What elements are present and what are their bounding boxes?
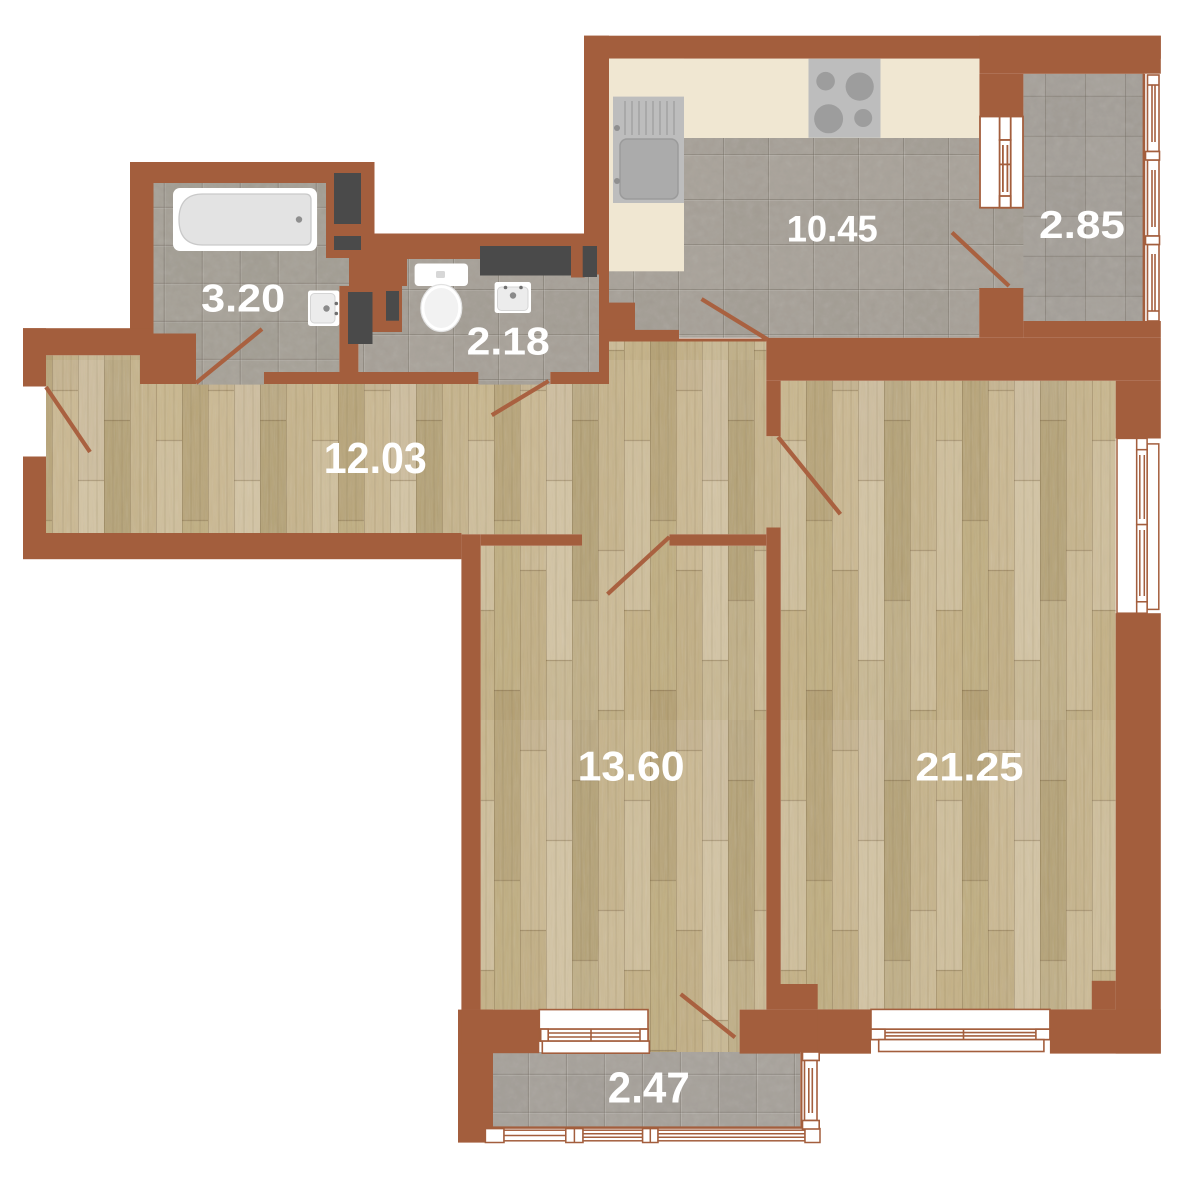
svg-text:10.45: 10.45 <box>787 208 878 250</box>
svg-text:13.60: 13.60 <box>578 742 685 789</box>
svg-text:3.20: 3.20 <box>201 278 285 321</box>
svg-text:2.85: 2.85 <box>1039 204 1125 247</box>
svg-text:12.03: 12.03 <box>324 435 427 483</box>
svg-text:2.18: 2.18 <box>467 321 550 364</box>
svg-text:21.25: 21.25 <box>915 745 1023 789</box>
svg-text:2.47: 2.47 <box>608 1065 690 1113</box>
